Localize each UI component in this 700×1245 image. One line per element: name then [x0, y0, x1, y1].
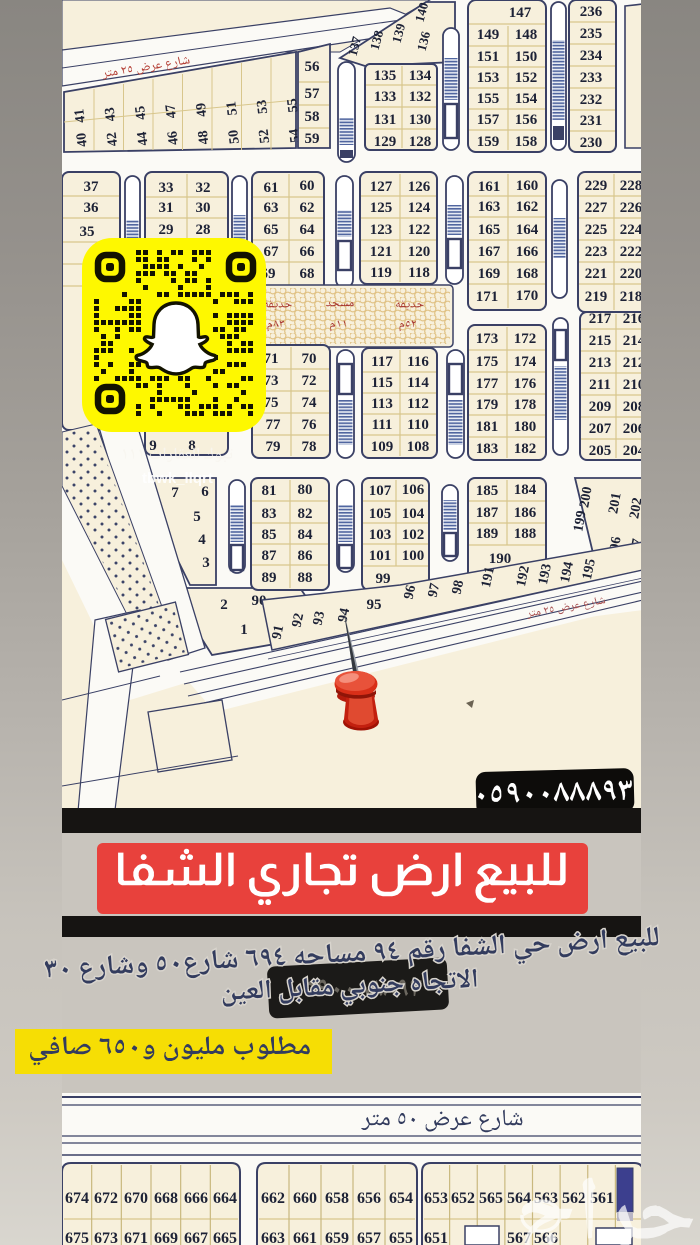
svg-text:674: 674	[65, 1190, 89, 1207]
svg-text:653: 653	[424, 1190, 448, 1207]
svg-text:659: 659	[325, 1230, 349, 1245]
svg-text:661: 661	[293, 1230, 317, 1245]
svg-text:672: 672	[94, 1190, 118, 1207]
svg-text:656: 656	[357, 1190, 381, 1207]
svg-text:658: 658	[325, 1190, 349, 1207]
svg-text:663: 663	[261, 1230, 285, 1245]
svg-text:655: 655	[389, 1230, 413, 1245]
svg-text:654: 654	[389, 1190, 413, 1207]
svg-text:562: 562	[562, 1190, 586, 1207]
svg-text:660: 660	[293, 1190, 317, 1207]
svg-text:673: 673	[94, 1230, 118, 1245]
svg-text:671: 671	[124, 1230, 148, 1245]
svg-text:675: 675	[65, 1230, 89, 1245]
svg-text:565: 565	[479, 1190, 503, 1207]
svg-text:668: 668	[154, 1190, 178, 1207]
svg-text:561: 561	[590, 1190, 614, 1207]
svg-text:651: 651	[424, 1230, 448, 1245]
svg-text:669: 669	[154, 1230, 178, 1245]
svg-text:667: 667	[184, 1230, 208, 1245]
svg-text:665: 665	[213, 1230, 237, 1245]
svg-text:652: 652	[451, 1190, 475, 1207]
svg-text:662: 662	[261, 1190, 285, 1207]
svg-text:666: 666	[184, 1190, 208, 1207]
svg-text:664: 664	[213, 1190, 237, 1207]
svg-text:657: 657	[357, 1230, 381, 1245]
svg-text:670: 670	[124, 1190, 148, 1207]
